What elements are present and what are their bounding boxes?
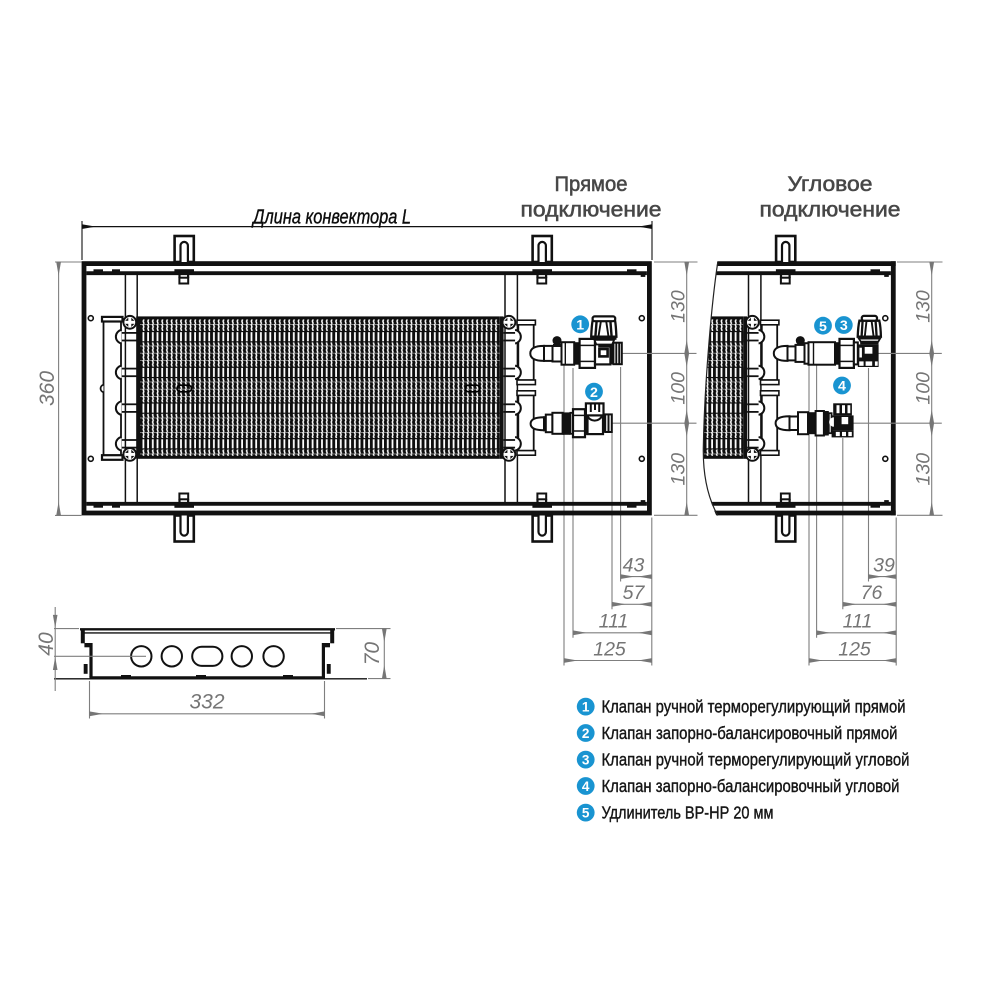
- svg-text:57: 57: [623, 582, 646, 604]
- svg-text:130: 130: [667, 290, 689, 323]
- svg-text:Удлинитель ВР-НР 20 мм: Удлинитель ВР-НР 20 мм: [602, 803, 774, 823]
- svg-text:100: 100: [667, 372, 689, 405]
- svg-text:Клапан ручной терморегулирующи: Клапан ручной терморегулирующий прямой: [602, 697, 906, 717]
- svg-text:3: 3: [840, 318, 848, 334]
- svg-text:2: 2: [590, 385, 598, 401]
- svg-text:4: 4: [838, 379, 846, 395]
- svg-text:130: 130: [912, 290, 934, 323]
- svg-text:1: 1: [582, 700, 590, 715]
- svg-text:5: 5: [582, 806, 590, 821]
- svg-text:125: 125: [838, 638, 871, 660]
- svg-text:130: 130: [912, 453, 934, 486]
- svg-text:5: 5: [819, 319, 827, 335]
- svg-text:Клапан запорно-балансировочный: Клапан запорно-балансировочный прямой: [602, 723, 898, 743]
- svg-text:Клапан запорно-балансировочный: Клапан запорно-балансировочный угловой: [602, 776, 900, 796]
- svg-text:111: 111: [599, 610, 629, 632]
- svg-text:130: 130: [667, 453, 689, 486]
- svg-text:40: 40: [35, 632, 58, 656]
- svg-text:111: 111: [843, 610, 873, 632]
- svg-text:Длина конвектора L: Длина конвектора L: [251, 206, 411, 229]
- svg-text:Прямое: Прямое: [555, 173, 628, 196]
- svg-text:2: 2: [582, 726, 590, 741]
- svg-text:3: 3: [582, 753, 590, 768]
- svg-text:125: 125: [593, 638, 626, 660]
- svg-text:1: 1: [576, 318, 584, 334]
- svg-text:332: 332: [189, 690, 224, 713]
- svg-text:76: 76: [861, 582, 883, 604]
- svg-text:Угловое: Угловое: [788, 173, 873, 196]
- svg-text:4: 4: [582, 779, 590, 794]
- svg-text:70: 70: [361, 642, 384, 666]
- svg-text:подключение: подключение: [760, 199, 901, 222]
- svg-text:100: 100: [912, 372, 934, 405]
- svg-text:Клапан ручной терморегулирующи: Клапан ручной терморегулирующий угловой: [602, 750, 910, 770]
- svg-text:360: 360: [36, 371, 59, 406]
- svg-text:39: 39: [873, 555, 895, 577]
- svg-text:подключение: подключение: [521, 199, 662, 222]
- svg-text:43: 43: [623, 555, 645, 577]
